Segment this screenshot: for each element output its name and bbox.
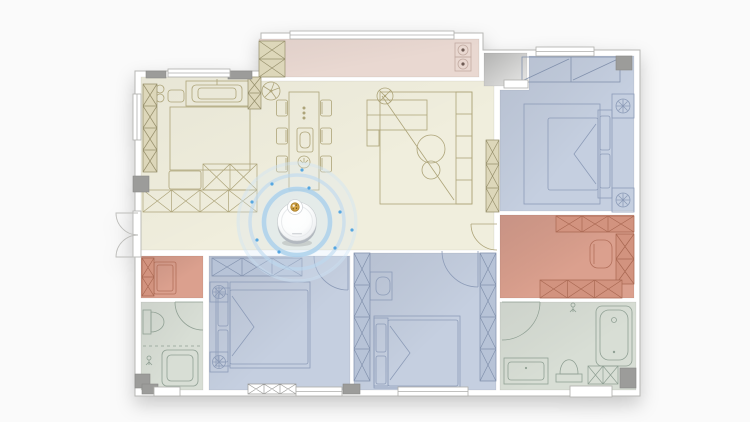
robot-map-dot bbox=[307, 186, 310, 189]
cabinet-hatch bbox=[540, 280, 622, 298]
entry-door[interactable] bbox=[116, 211, 141, 257]
apartment-plan bbox=[116, 31, 640, 397]
window bbox=[398, 387, 468, 396]
robot-map-dot bbox=[300, 168, 303, 171]
robot-map-dot bbox=[250, 200, 253, 203]
cabinet-hatch bbox=[142, 258, 154, 296]
robot-logo-mark bbox=[292, 233, 302, 234]
robot-map-dot bbox=[350, 228, 353, 231]
floor-plan-stage bbox=[0, 0, 750, 422]
window bbox=[296, 387, 342, 396]
cabinet-hatch bbox=[259, 41, 285, 77]
cabinet-hatch bbox=[486, 140, 499, 212]
cabinet-hatch bbox=[556, 216, 634, 232]
window bbox=[133, 94, 141, 140]
vestibule-threshold bbox=[504, 80, 528, 88]
window-sill bbox=[570, 386, 612, 397]
robot-map-dot bbox=[255, 238, 258, 241]
robot-map-dot bbox=[333, 246, 336, 249]
robot-camera-lens bbox=[291, 203, 299, 211]
window bbox=[536, 47, 594, 56]
cabinet-hatch bbox=[248, 384, 296, 394]
robot-map-dot bbox=[270, 182, 273, 185]
robot-map-dot bbox=[338, 210, 341, 213]
cabinet-hatch bbox=[143, 84, 157, 172]
threshold bbox=[154, 387, 180, 396]
floor-plan bbox=[0, 0, 750, 422]
room-bathroom-right[interactable] bbox=[500, 302, 636, 390]
robot-map-dot bbox=[277, 250, 280, 253]
lens-detail-dot bbox=[296, 208, 297, 209]
lens-detail-dot bbox=[293, 208, 294, 209]
window bbox=[290, 31, 454, 39]
robot-vacuum[interactable] bbox=[238, 163, 356, 281]
window bbox=[168, 69, 230, 77]
cabinet-hatch bbox=[354, 253, 370, 381]
cabinet-hatch bbox=[248, 77, 261, 109]
room-bedroom-bottom-middle[interactable] bbox=[354, 253, 496, 390]
lens-detail-dot bbox=[296, 204, 297, 205]
room-balcony[interactable] bbox=[259, 39, 479, 77]
cabinet-hatch bbox=[616, 234, 634, 284]
lens-highlight bbox=[293, 205, 295, 207]
cabinet-hatch bbox=[480, 253, 496, 381]
